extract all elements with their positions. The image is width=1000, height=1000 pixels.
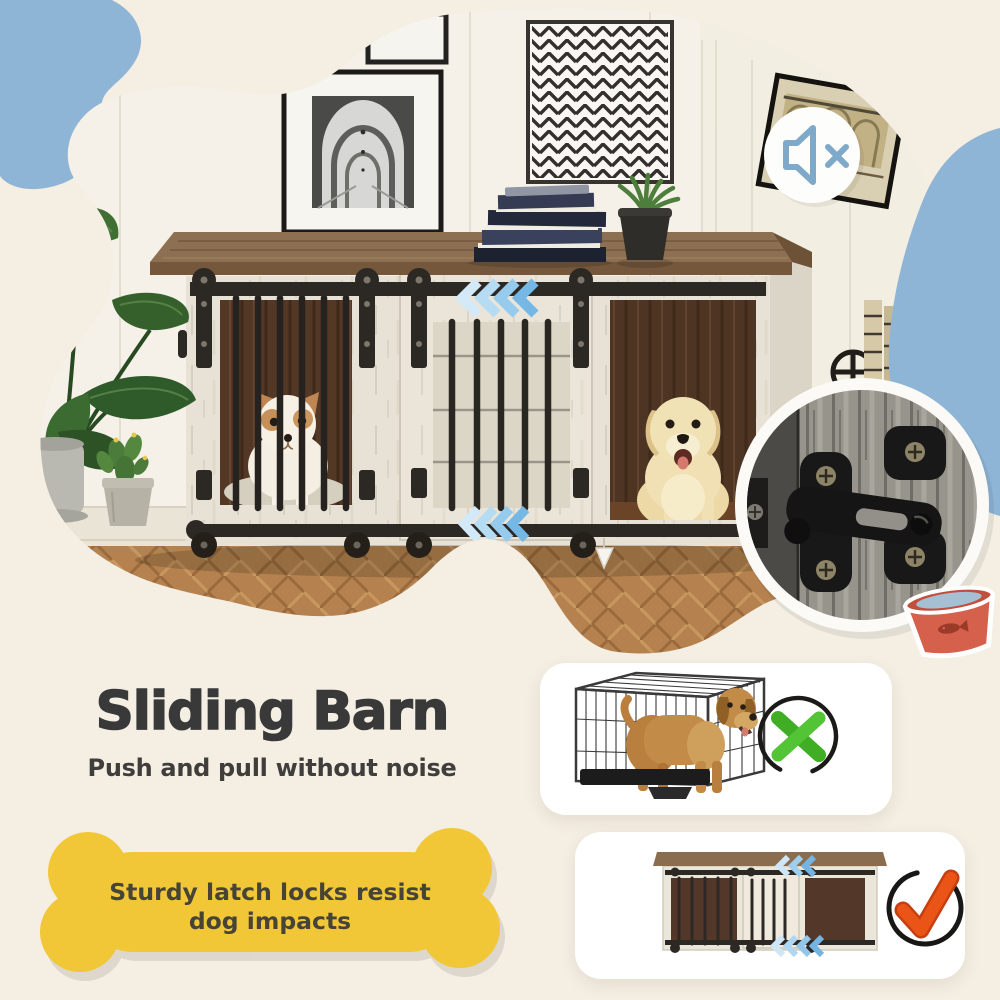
crate-tray bbox=[580, 769, 710, 785]
infographic-canvas: Sliding Barn Push and pull without noise… bbox=[0, 0, 1000, 1000]
page-subtitle: Push and pull without noise bbox=[70, 754, 474, 782]
black-plant-pot bbox=[620, 216, 670, 260]
comparison-card-wire-crate bbox=[540, 663, 892, 815]
wall-art-partial-frame bbox=[368, 14, 446, 62]
side-latch-handle bbox=[178, 330, 187, 358]
large-planter-pot bbox=[26, 442, 84, 514]
dog-bowl-sticker bbox=[904, 583, 1000, 661]
wall-art-archway-photo bbox=[284, 72, 441, 232]
barn-crate-illustration bbox=[653, 852, 887, 955]
right-compartment bbox=[610, 300, 756, 536]
comparison-card-barn-crate bbox=[575, 832, 965, 979]
headline-block: Sliding Barn Push and pull without noise bbox=[70, 684, 474, 782]
left-compartment-door bbox=[220, 298, 352, 512]
puppy-labrador bbox=[637, 397, 729, 536]
check-icon bbox=[875, 858, 965, 958]
wall-art-chevron-canvas bbox=[528, 22, 672, 182]
page-title: Sliding Barn bbox=[70, 684, 474, 740]
bone-callout-text: Sturdy latch locks resist dog impacts bbox=[95, 878, 445, 937]
